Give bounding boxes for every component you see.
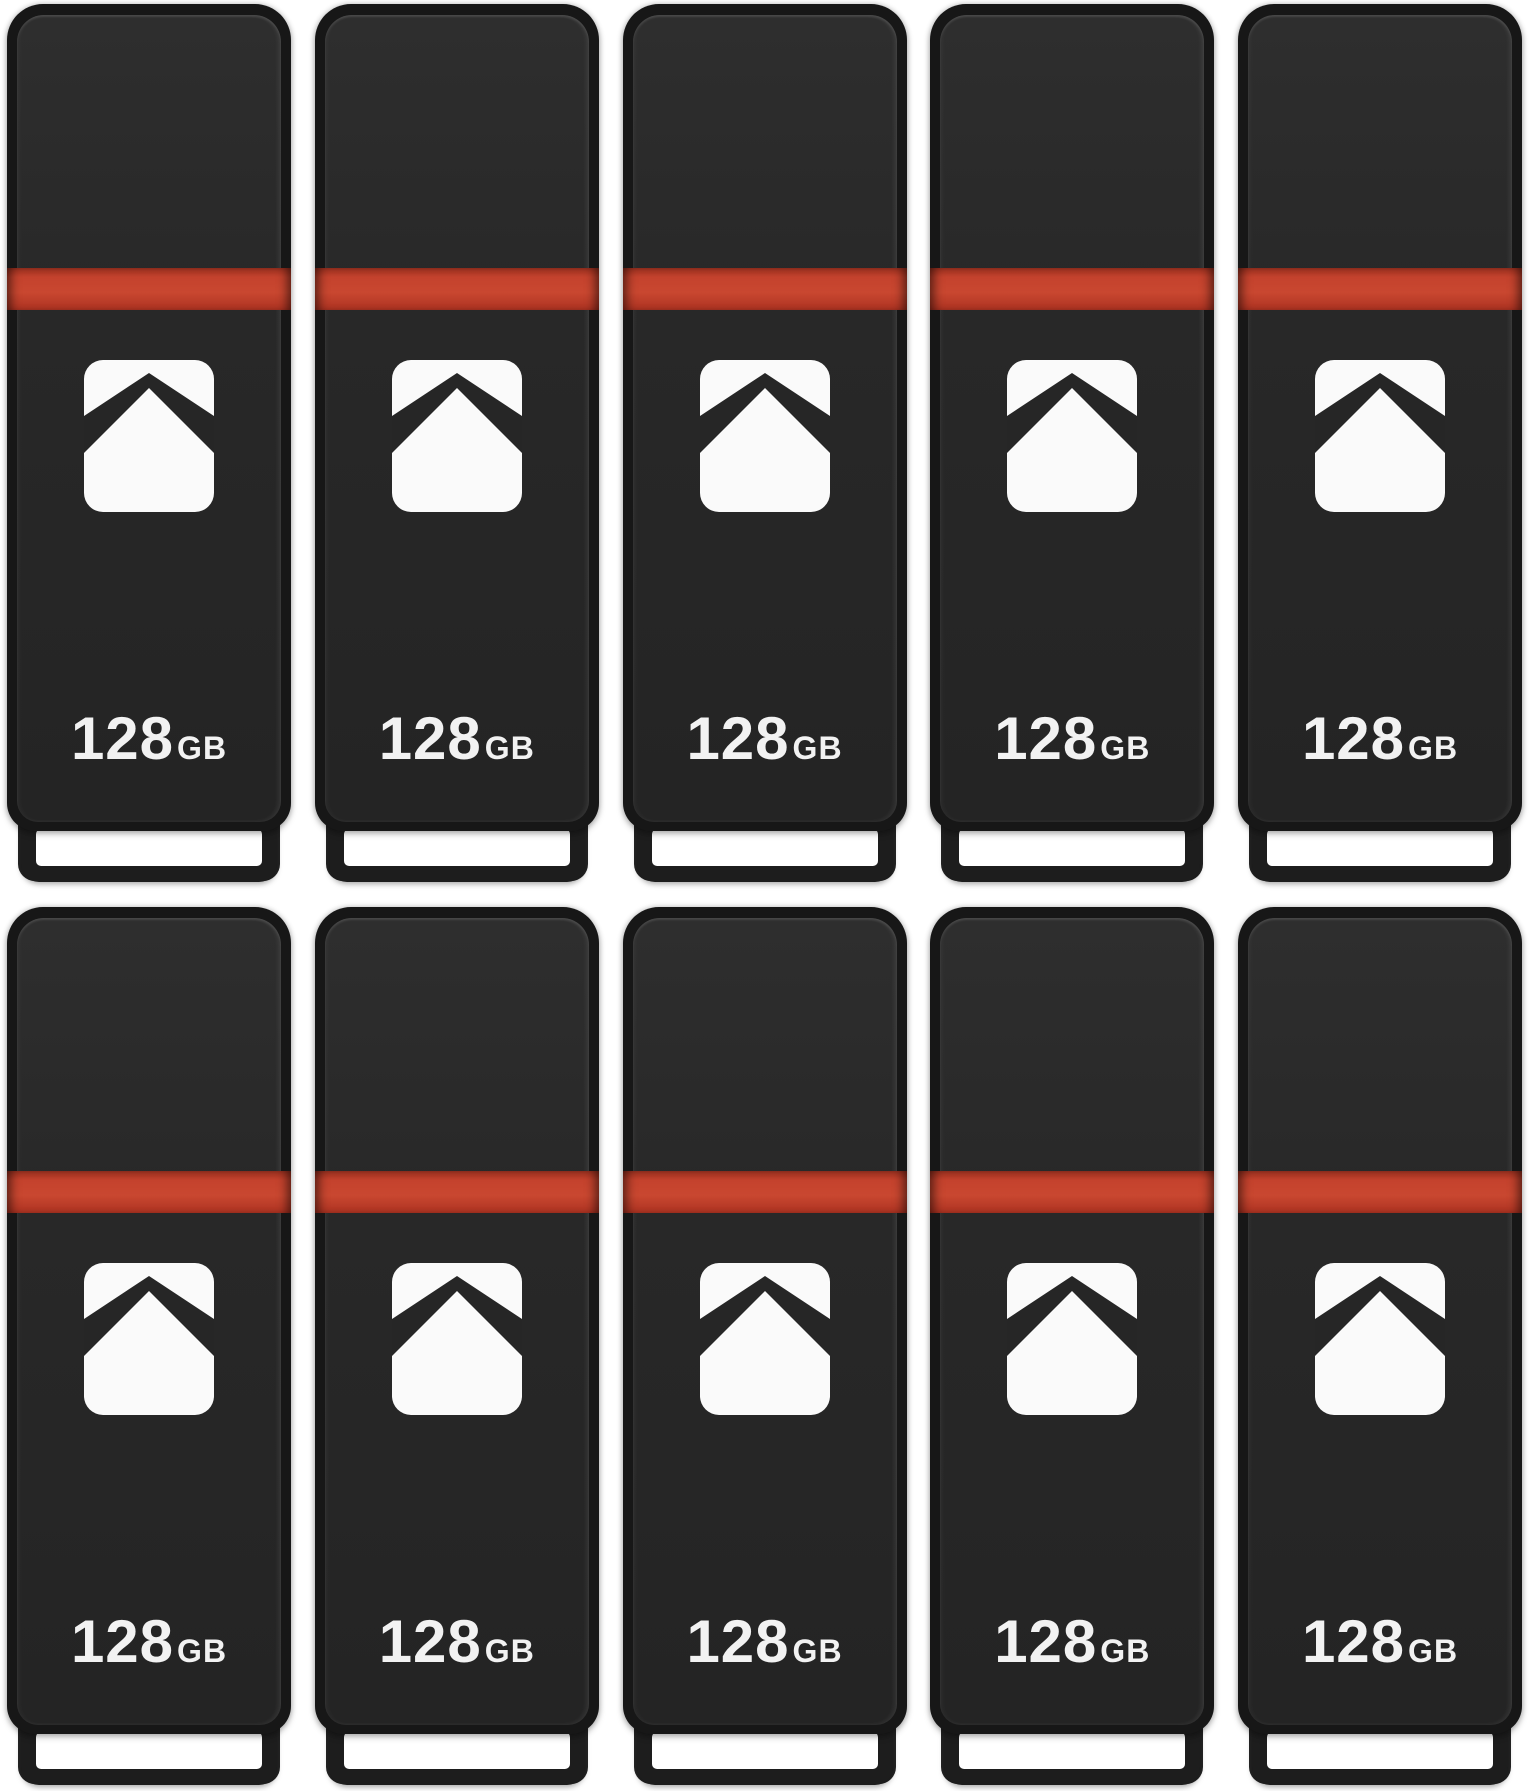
red-stripe bbox=[930, 268, 1214, 310]
capacity-unit: GB bbox=[1408, 1633, 1458, 1670]
usb-drive: 128GB bbox=[621, 903, 909, 1788]
up-arrow-house-icon bbox=[1007, 360, 1137, 512]
up-arrow-house-icon bbox=[700, 1263, 830, 1415]
red-stripe bbox=[623, 268, 907, 310]
red-stripe bbox=[1238, 268, 1522, 310]
drive-body: 128GB bbox=[7, 907, 291, 1734]
up-arrow-house-icon bbox=[1315, 1263, 1445, 1415]
red-stripe bbox=[1238, 1171, 1522, 1213]
capacity-label: 128GB bbox=[1238, 1607, 1522, 1676]
drive-body: 128GB bbox=[930, 907, 1214, 1734]
red-stripe bbox=[623, 1171, 907, 1213]
capacity-value: 128 bbox=[994, 704, 1097, 773]
capacity-unit: GB bbox=[485, 1633, 535, 1670]
drive-body: 128GB bbox=[315, 4, 599, 831]
drive-row-2: 128GB 128GB bbox=[0, 903, 1538, 1788]
capacity-unit: GB bbox=[793, 1633, 843, 1670]
red-stripe bbox=[315, 1171, 599, 1213]
capacity-unit: GB bbox=[485, 730, 535, 767]
usb-drive: 128GB bbox=[621, 0, 909, 885]
capacity-label: 128GB bbox=[930, 1607, 1214, 1676]
drive-body: 128GB bbox=[623, 907, 907, 1734]
capacity-label: 128GB bbox=[315, 704, 599, 773]
capacity-value: 128 bbox=[71, 704, 174, 773]
capacity-label: 128GB bbox=[930, 704, 1214, 773]
up-arrow-house-icon bbox=[700, 360, 830, 512]
capacity-label: 128GB bbox=[7, 704, 291, 773]
usb-slot bbox=[652, 1732, 878, 1769]
drive-body: 128GB bbox=[315, 907, 599, 1734]
capacity-label: 128GB bbox=[623, 704, 907, 773]
capacity-value: 128 bbox=[71, 1607, 174, 1676]
usb-slot bbox=[959, 1732, 1185, 1769]
drive-body: 128GB bbox=[1238, 907, 1522, 1734]
red-stripe bbox=[7, 268, 291, 310]
capacity-value: 128 bbox=[686, 1607, 789, 1676]
drive-body: 128GB bbox=[1238, 4, 1522, 831]
up-arrow-house-icon bbox=[84, 360, 214, 512]
usb-slot bbox=[1267, 829, 1493, 866]
capacity-value: 128 bbox=[379, 704, 482, 773]
capacity-value: 128 bbox=[1302, 1607, 1405, 1676]
capacity-value: 128 bbox=[994, 1607, 1097, 1676]
capacity-value: 128 bbox=[379, 1607, 482, 1676]
capacity-value: 128 bbox=[686, 704, 789, 773]
usb-drive: 128GB bbox=[1236, 903, 1524, 1788]
drive-body: 128GB bbox=[930, 4, 1214, 831]
capacity-unit: GB bbox=[1408, 730, 1458, 767]
up-arrow-house-icon bbox=[1315, 360, 1445, 512]
up-arrow-house-icon bbox=[1007, 1263, 1137, 1415]
capacity-unit: GB bbox=[1100, 730, 1150, 767]
usb-drive: 128GB bbox=[1236, 0, 1524, 885]
up-arrow-house-icon bbox=[392, 360, 522, 512]
capacity-label: 128GB bbox=[7, 1607, 291, 1676]
capacity-unit: GB bbox=[1100, 1633, 1150, 1670]
capacity-unit: GB bbox=[793, 730, 843, 767]
product-image: 128GB 128GB bbox=[0, 0, 1538, 1791]
red-stripe bbox=[315, 268, 599, 310]
up-arrow-house-icon bbox=[392, 1263, 522, 1415]
usb-drive: 128GB bbox=[313, 903, 601, 1788]
drive-body: 128GB bbox=[623, 4, 907, 831]
capacity-label: 128GB bbox=[623, 1607, 907, 1676]
capacity-value: 128 bbox=[1302, 704, 1405, 773]
up-arrow-house-icon bbox=[84, 1263, 214, 1415]
capacity-unit: GB bbox=[177, 1633, 227, 1670]
usb-drive: 128GB bbox=[313, 0, 601, 885]
red-stripe bbox=[7, 1171, 291, 1213]
usb-slot bbox=[344, 1732, 570, 1769]
usb-slot bbox=[1267, 1732, 1493, 1769]
usb-slot bbox=[36, 829, 262, 866]
usb-drive: 128GB bbox=[928, 903, 1216, 1788]
red-stripe bbox=[930, 1171, 1214, 1213]
usb-slot bbox=[652, 829, 878, 866]
usb-slot bbox=[344, 829, 570, 866]
drive-body: 128GB bbox=[7, 4, 291, 831]
drive-row-1: 128GB 128GB bbox=[0, 0, 1538, 885]
capacity-label: 128GB bbox=[1238, 704, 1522, 773]
capacity-label: 128GB bbox=[315, 1607, 599, 1676]
usb-drive: 128GB bbox=[5, 903, 293, 1788]
usb-drive: 128GB bbox=[928, 0, 1216, 885]
usb-drive: 128GB bbox=[5, 0, 293, 885]
usb-slot bbox=[36, 1732, 262, 1769]
usb-slot bbox=[959, 829, 1185, 866]
capacity-unit: GB bbox=[177, 730, 227, 767]
